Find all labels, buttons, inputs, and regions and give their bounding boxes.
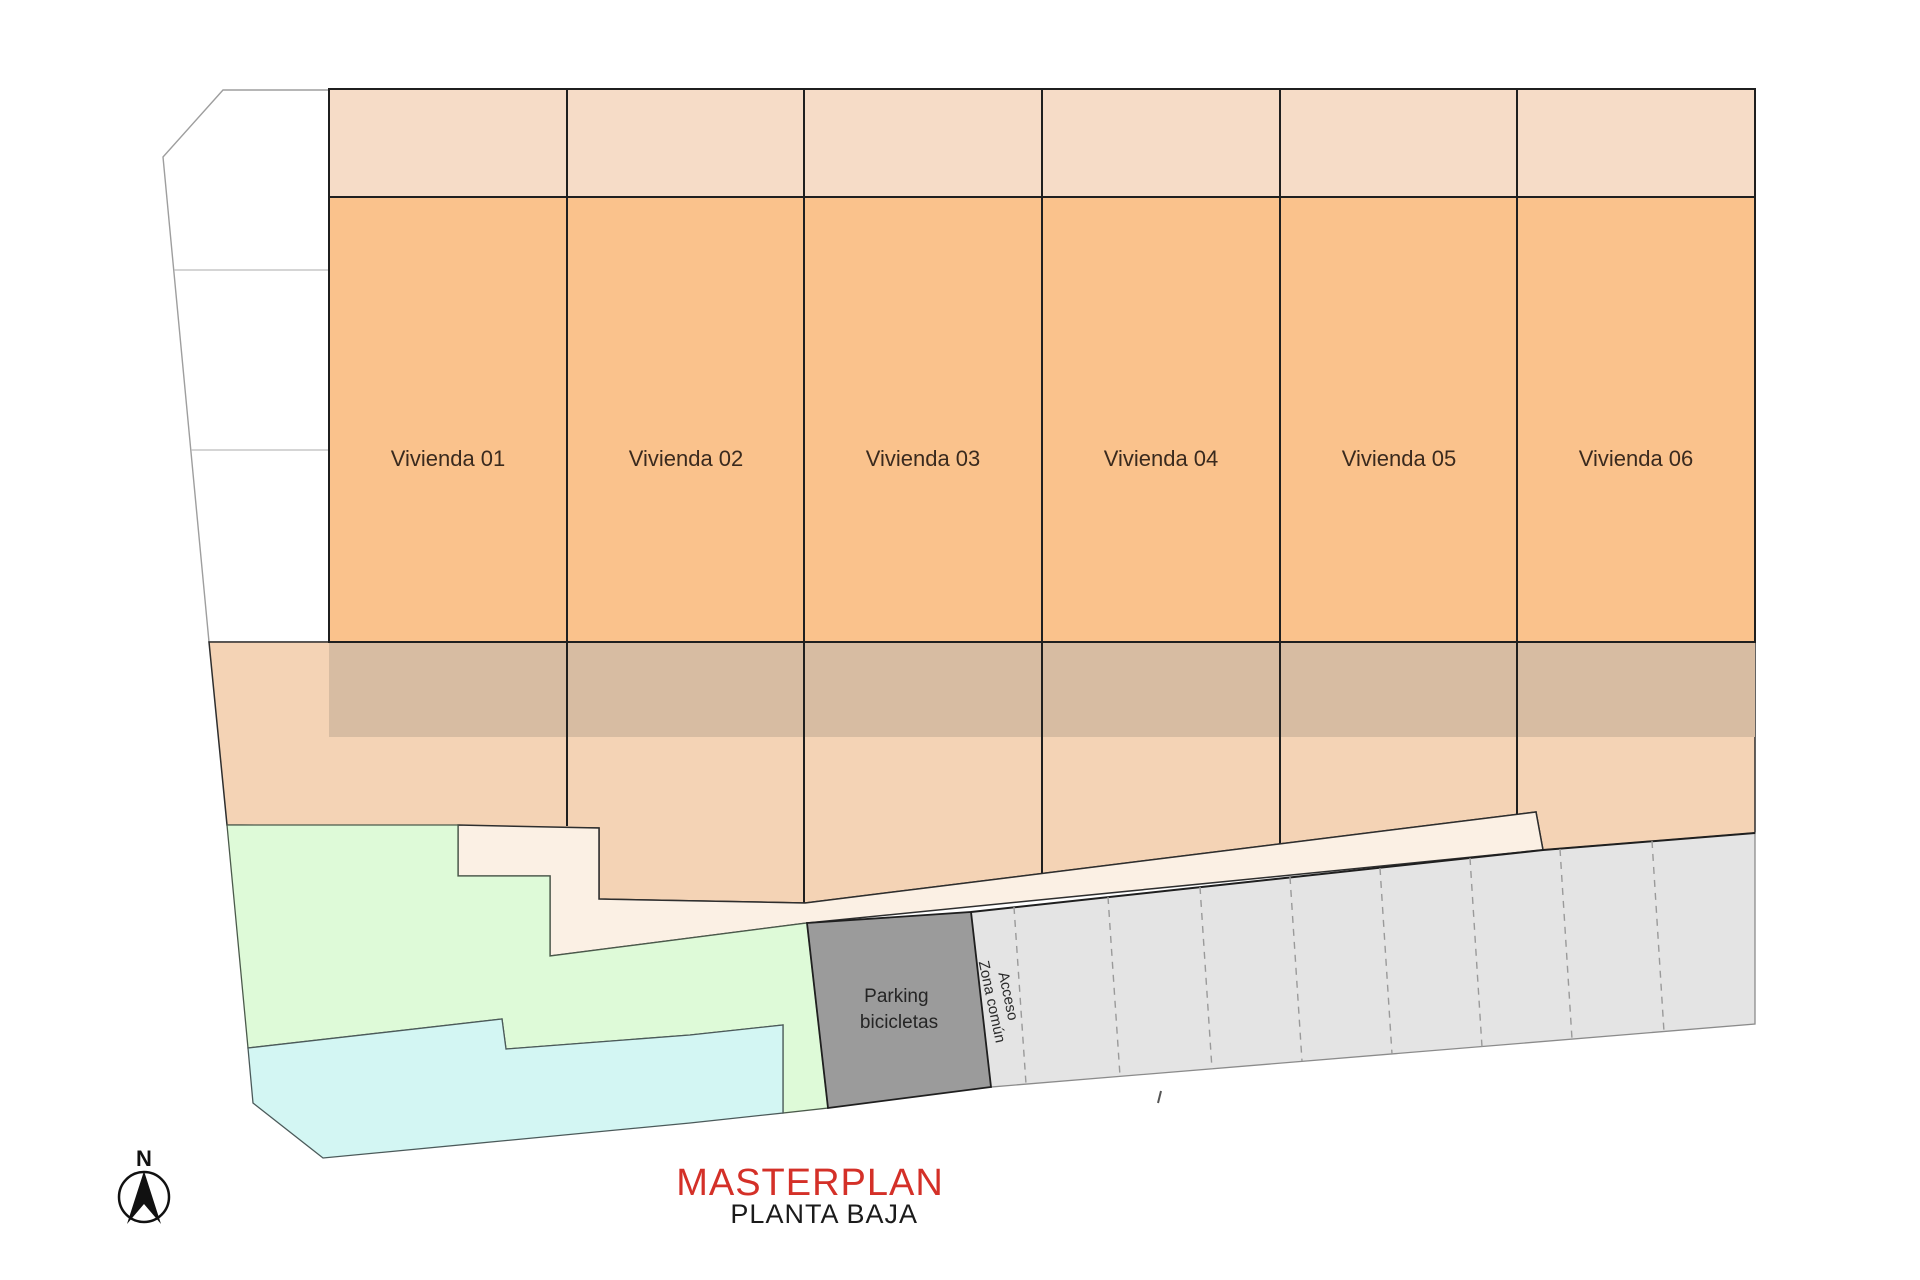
north-label: N	[136, 1146, 152, 1171]
vivienda-02-label: Vivienda 02	[629, 446, 744, 471]
north-arrow-icon	[127, 1171, 161, 1224]
vivienda-04-label: Vivienda 04	[1104, 446, 1219, 471]
curb-tick	[1158, 1091, 1161, 1103]
vivienda-03-label: Vivienda 03	[866, 446, 981, 471]
plan-title: MASTERPLAN	[676, 1162, 944, 1204]
side-grey-zone	[163, 90, 329, 642]
vivienda-01-label: Vivienda 01	[391, 446, 506, 471]
vivienda-05-label: Vivienda 05	[1342, 446, 1457, 471]
masterplan-page: Vivienda 01 Vivienda 02 Vivienda 03 Vivi…	[0, 0, 1920, 1280]
vivienda-06-label: Vivienda 06	[1579, 446, 1694, 471]
masterplan-drawing: Vivienda 01 Vivienda 02 Vivienda 03 Vivi…	[0, 0, 1920, 1280]
plan-subtitle: PLANTA BAJA	[730, 1199, 918, 1229]
bike-parking-zone	[807, 912, 991, 1108]
